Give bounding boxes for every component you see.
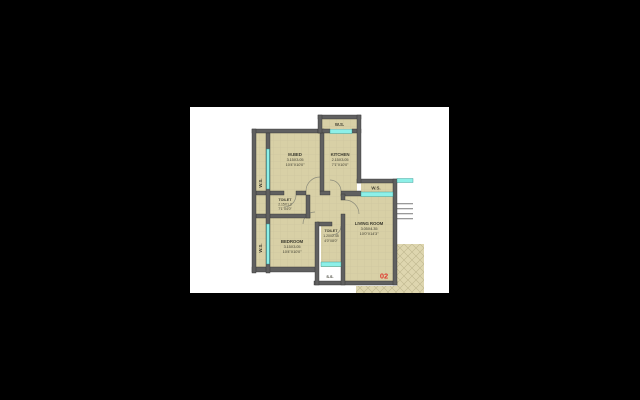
unit-number: 02 [380, 272, 388, 281]
toilet2-dim-m: 1.20X2.45 [323, 234, 339, 238]
ws-shaft-upper-label: W.S. [258, 178, 263, 187]
ss-shaft-label: S.S. [326, 275, 333, 279]
toilet2-dim-ft: 4'0"X8'0" [324, 239, 338, 243]
toilet1-name: TOILET [278, 198, 292, 202]
ws-shaft-lower-label: W.S. [258, 243, 263, 252]
floor-plan-drawing: W.S. M.BED 3.15X3.05 10'4"X10'0" KITCHEN… [0, 0, 640, 400]
room-label-kitchen: KITCHEN 2.15X3.05 7'1"X10'0" [331, 152, 350, 167]
ws-right-label: W.S. [371, 186, 380, 191]
floor-plan-page: W.S. M.BED 3.15X3.05 10'4"X10'0" KITCHEN… [0, 0, 640, 400]
living-dim-ft: 10'0"X14'3" [360, 231, 379, 236]
bedroom-dim-ft: 10'4"X10'0" [283, 249, 302, 254]
ws-top-label: W.S. [335, 122, 344, 127]
toilet1-dim-ft: 7'1"X4'0" [278, 207, 292, 211]
toilet1-dim-m: 2.15X1.2 [278, 203, 292, 207]
kitchen-dim-ft: 7'1"X10'0" [332, 162, 349, 167]
room-label-toilet1: TOILET 2.15X1.2 7'1"X4'0" [278, 198, 292, 211]
mbed-dim-ft: 10'4"X10'0" [286, 162, 305, 167]
toilet2-name: TOILET [324, 229, 338, 233]
room-label-toilet2: TOILET 1.20X2.45 4'0"X8'0" [323, 229, 339, 243]
room-label-bedroom: BEDROOM 3.15X3.05 10'4"X10'0" [281, 239, 304, 254]
